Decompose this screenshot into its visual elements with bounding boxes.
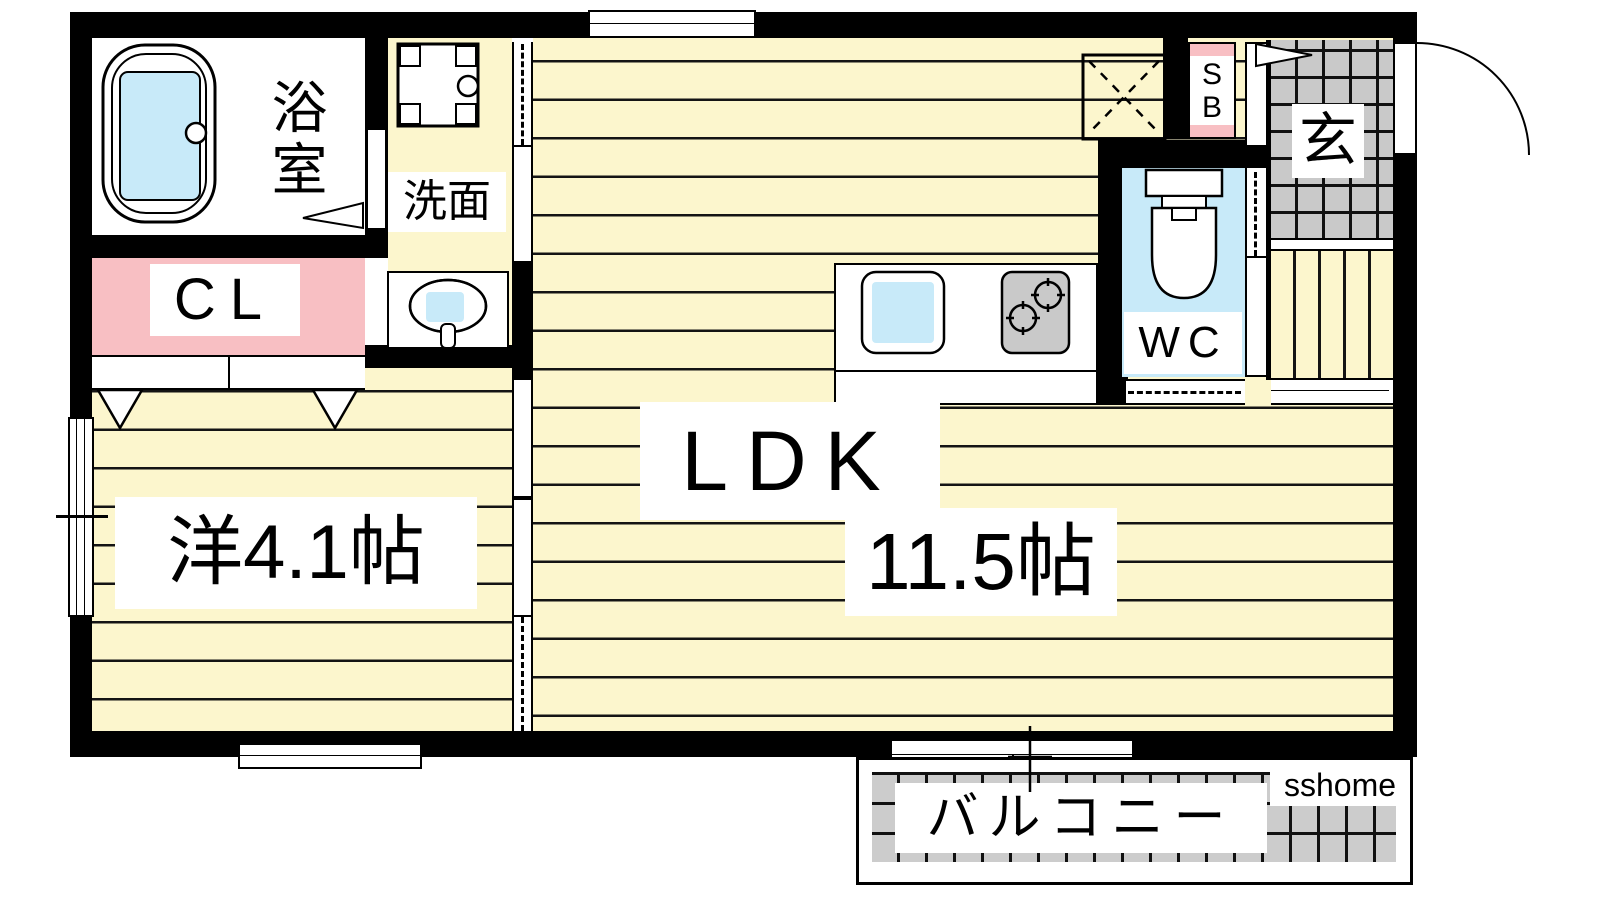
western-room-sliding-door-2 bbox=[512, 498, 533, 617]
closet-label: CL bbox=[150, 264, 300, 336]
wc-door-track bbox=[1254, 172, 1257, 256]
bathroom-door-panel bbox=[366, 128, 387, 230]
wc-label: WC bbox=[1124, 312, 1242, 374]
western-room-label: 洋4.1帖 bbox=[115, 497, 477, 609]
ldk-label: LDK bbox=[640, 402, 940, 520]
hallway-opening-line bbox=[1271, 390, 1389, 391]
washroom-sliding-door bbox=[512, 145, 533, 263]
shoe-box-band-bottom bbox=[1190, 125, 1234, 137]
closet-front-divider bbox=[228, 357, 230, 388]
washroom-bottom-wall bbox=[365, 345, 512, 368]
entrance-step bbox=[1271, 238, 1393, 251]
shoe-box-wall-stub bbox=[1163, 38, 1188, 139]
wc-entry-door-dash bbox=[1128, 391, 1241, 394]
bathroom-bottom-wall bbox=[92, 235, 365, 258]
window-top bbox=[588, 10, 756, 38]
ldk-size-label: 11.5帖 bbox=[845, 508, 1117, 616]
hallway-opening bbox=[1271, 378, 1393, 405]
shoe-box-label-line2: B bbox=[1202, 91, 1222, 124]
washroom-label: 洗面 bbox=[388, 172, 506, 232]
hallway-floor bbox=[1271, 251, 1393, 378]
wall-right-main bbox=[1393, 155, 1417, 757]
wall-right-top bbox=[1393, 12, 1417, 42]
shoe-box-label: S B bbox=[1190, 56, 1234, 125]
bathroom-label: 浴室 bbox=[258, 66, 332, 214]
window-bottom-western bbox=[238, 743, 422, 769]
wc-wall-bottom-stub bbox=[1098, 377, 1128, 405]
wall-left bbox=[70, 12, 92, 757]
wc-sliding-door bbox=[1245, 256, 1268, 377]
balcony-label: バルコニー bbox=[895, 783, 1267, 853]
shoe-box-band-top bbox=[1190, 44, 1234, 56]
window-top-rail bbox=[590, 23, 754, 24]
shoe-box-door-panel bbox=[1245, 42, 1268, 147]
window-bottom-western-rail bbox=[240, 755, 420, 756]
sliding-door-track-top bbox=[521, 44, 524, 145]
floor-plan: S B 浴室 洗面 CL 洋4.1帖 LDK 11.5帖 WC 玄 バルコニー … bbox=[0, 0, 1600, 900]
entrance-door-leaf bbox=[1393, 42, 1417, 155]
western-room-sliding-door-1 bbox=[512, 378, 533, 498]
closet-front bbox=[92, 355, 365, 390]
wc-entry-door-band bbox=[1126, 379, 1245, 405]
watermark-label: sshome bbox=[1270, 764, 1410, 806]
entrance-door-swing-icon bbox=[1417, 43, 1529, 155]
sliding-door-track-bottom bbox=[521, 617, 524, 731]
window-left-center-tick bbox=[56, 515, 108, 518]
entrance-label: 玄 bbox=[1292, 104, 1364, 178]
divider-wall-mid bbox=[512, 263, 533, 378]
shoe-box-label-line1: S bbox=[1202, 58, 1222, 91]
wc-wall-left bbox=[1098, 140, 1122, 405]
shoe-box: S B bbox=[1188, 42, 1236, 139]
kitchen-counter-edge bbox=[836, 370, 1096, 372]
kitchen-counter bbox=[834, 263, 1098, 405]
